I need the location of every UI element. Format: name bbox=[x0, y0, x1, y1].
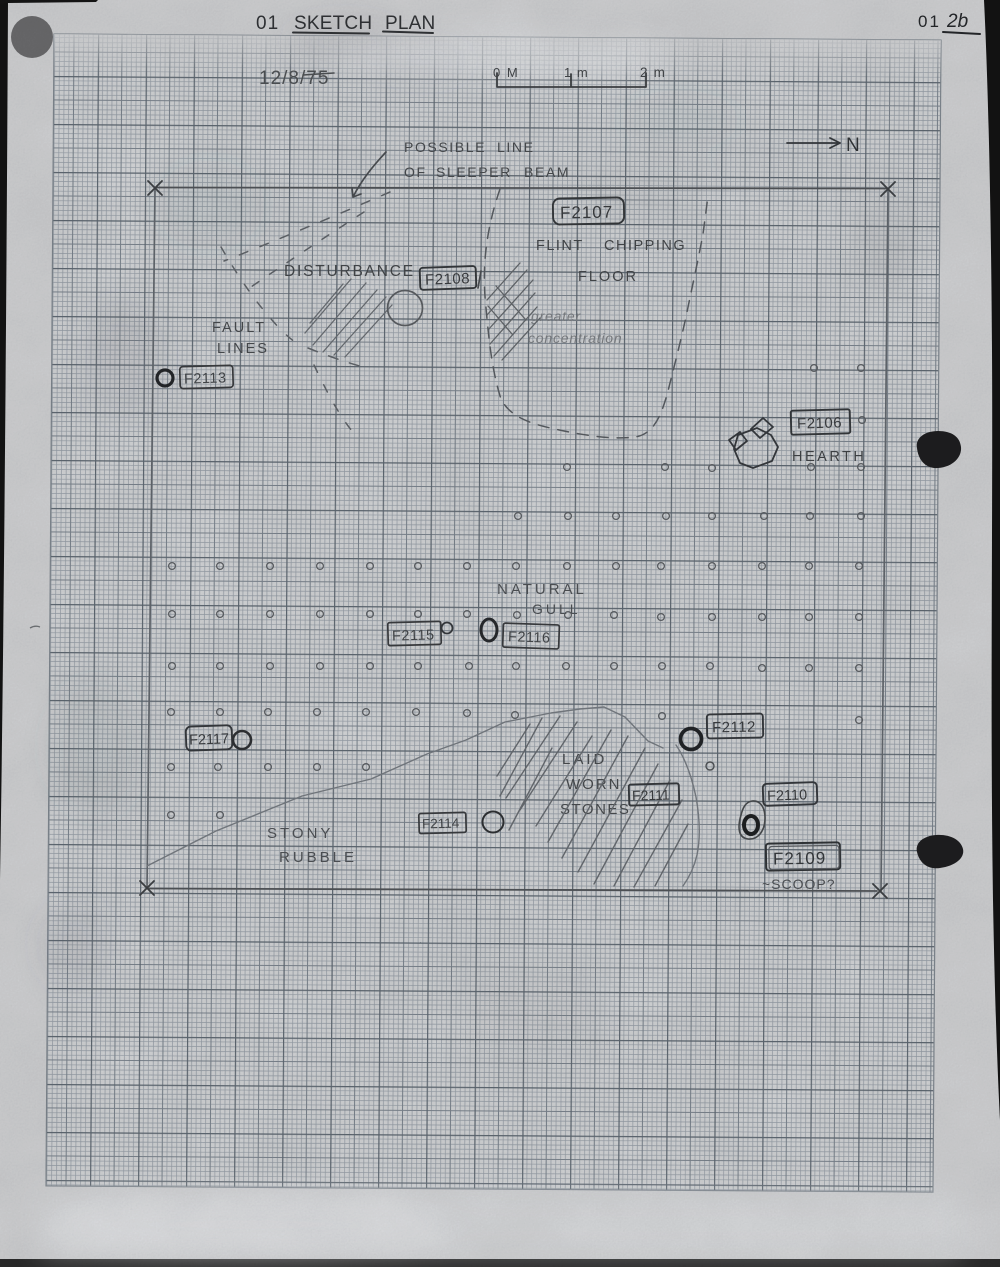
svg-text:F2108: F2108 bbox=[425, 270, 471, 289]
svg-text:~SCOOP?: ~SCOOP? bbox=[762, 876, 836, 892]
svg-text:SKETCH: SKETCH bbox=[294, 13, 372, 34]
svg-text:12/8/75: 12/8/75 bbox=[259, 68, 329, 89]
svg-text:WORN: WORN bbox=[566, 776, 622, 793]
svg-text:NATURAL: NATURAL bbox=[497, 581, 587, 598]
svg-text:STONES: STONES bbox=[560, 801, 630, 818]
svg-text:N: N bbox=[846, 135, 860, 156]
svg-text:LAID: LAID bbox=[562, 751, 607, 768]
svg-text:F2116: F2116 bbox=[508, 629, 551, 646]
svg-text:greater: greater bbox=[531, 308, 581, 324]
svg-text:F2109: F2109 bbox=[773, 849, 827, 869]
svg-text:F2111: F2111 bbox=[632, 787, 670, 804]
svg-text:LINE: LINE bbox=[497, 139, 535, 155]
svg-text:CHIPPING: CHIPPING bbox=[604, 238, 686, 254]
svg-text:LINES: LINES bbox=[217, 341, 269, 357]
svg-text:SLEEPER: SLEEPER bbox=[436, 164, 512, 180]
svg-text:DISTURBANCE: DISTURBANCE bbox=[284, 263, 415, 280]
svg-text:F2115: F2115 bbox=[392, 627, 435, 644]
svg-text:FAULT: FAULT bbox=[212, 320, 266, 336]
svg-text:F2110: F2110 bbox=[767, 787, 808, 804]
svg-text:POSSIBLE: POSSIBLE bbox=[404, 139, 486, 155]
svg-text:F2114: F2114 bbox=[422, 816, 460, 832]
svg-text:F2117: F2117 bbox=[189, 731, 230, 748]
svg-text:FLINT: FLINT bbox=[536, 238, 584, 254]
svg-text:HEARTH: HEARTH bbox=[792, 449, 866, 465]
svg-text:F2112: F2112 bbox=[712, 719, 756, 737]
svg-text:0 M: 0 M bbox=[493, 65, 519, 80]
svg-text:F2107: F2107 bbox=[560, 203, 614, 223]
svg-text:BEAM: BEAM bbox=[524, 164, 570, 180]
svg-text:F2106: F2106 bbox=[797, 414, 842, 432]
svg-text:01: 01 bbox=[918, 12, 941, 31]
svg-text:STONY: STONY bbox=[267, 825, 333, 842]
svg-text:concentration: concentration bbox=[528, 330, 622, 346]
svg-text:1 m: 1 m bbox=[564, 65, 589, 80]
svg-text:F2113: F2113 bbox=[184, 370, 227, 387]
svg-text:RUBBLE: RUBBLE bbox=[279, 849, 357, 866]
svg-text:2b: 2b bbox=[946, 11, 968, 32]
svg-text:01: 01 bbox=[256, 13, 279, 34]
svg-text:GULL: GULL bbox=[532, 601, 581, 617]
svg-text:FLOOR: FLOOR bbox=[578, 269, 638, 285]
svg-text:2 m: 2 m bbox=[640, 65, 666, 80]
svg-text:OF: OF bbox=[404, 164, 427, 180]
